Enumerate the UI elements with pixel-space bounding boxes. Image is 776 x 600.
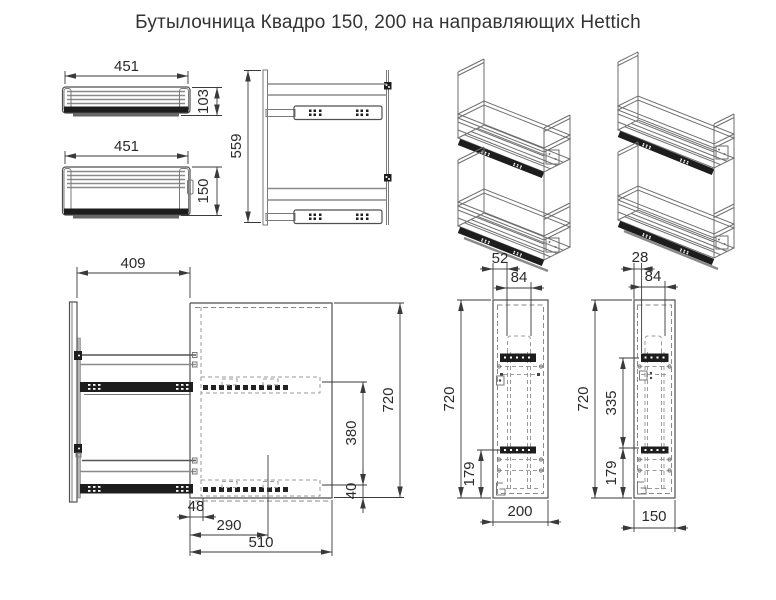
upper-tier-side — [74, 351, 320, 395]
dim-label-150-rail-height: 179 — [603, 460, 620, 485]
dim-label-200-side-offset: 52 — [492, 250, 509, 267]
cabinet-outline — [190, 303, 332, 498]
iso-view-kvadro-200 — [458, 59, 570, 271]
dim-label-150-rail-spacing: 335 — [603, 390, 620, 415]
dim-200: 200 — [480, 500, 561, 526]
cabinet-200-outline — [493, 300, 548, 498]
front-view-200: 52 84 720 179 200 — [441, 250, 561, 526]
dim-label-200-width: 200 — [507, 503, 532, 520]
dim-179-200: 179 — [461, 450, 501, 498]
dim-84-200: 84 — [494, 269, 544, 336]
dim-label-200-rail-height: 179 — [461, 461, 478, 486]
unit-frame-post — [78, 338, 81, 498]
dim-label-200-height: 720 — [441, 386, 458, 411]
dim-48: 48 — [177, 498, 216, 556]
dim-label-plan-depth: 559 — [228, 133, 245, 158]
dim-451-small: 451 — [65, 58, 188, 84]
dim-52: 52 — [480, 250, 520, 336]
dim-label-rail-bottom-offset: 40 — [343, 483, 360, 500]
dim-451-large: 451 — [65, 138, 188, 164]
dim-label-basket-large-height: 150 — [195, 178, 212, 203]
dim-label-rail-spacing: 380 — [343, 420, 360, 445]
dim-label-150-side-offset: 28 — [632, 249, 649, 266]
basket-side-view-small: 451 103 — [63, 58, 223, 117]
dim-label-front-offset: 48 — [188, 498, 205, 515]
dim-409: 409 — [77, 255, 190, 298]
dim-label-200-unit-width: 84 — [511, 269, 528, 286]
dim-150-width: 150 — [621, 500, 688, 532]
dim-label-inner-depth: 290 — [216, 517, 241, 534]
plan-view: 559 — [228, 70, 392, 225]
dim-380: 380 — [322, 382, 367, 485]
rail-perforations-top — [309, 110, 369, 117]
cabinet-150-outline — [634, 300, 675, 498]
lower-tier-side — [74, 444, 320, 496]
door-panel — [70, 302, 78, 502]
dim-label-150-unit-width: 84 — [645, 268, 662, 285]
rail-perforations-bottom — [309, 214, 369, 221]
dim-label-basket-small-height: 103 — [195, 89, 212, 114]
iso-view-kvadro-150 — [618, 52, 734, 269]
drawing-canvas: 451 103 451 150 — [0, 0, 776, 600]
basket-side-view-large: 451 150 — [63, 138, 223, 219]
dim-label-side-height: 720 — [380, 387, 397, 412]
dim-720-side: 720 — [334, 303, 404, 498]
dim-40: 40 — [343, 469, 363, 513]
dim-290: 290 — [190, 455, 268, 539]
dim-label-cabinet-depth: 510 — [248, 534, 273, 551]
side-section-view: 409 720 380 40 48 — [70, 255, 405, 556]
dim-label-basket-large-width: 451 — [114, 138, 139, 155]
dim-559: 559 — [228, 71, 261, 223]
front-view-150: 28 84 720 335 179 — [575, 249, 688, 532]
dim-510: 510 — [190, 500, 332, 556]
dim-84-150: 84 — [629, 268, 678, 336]
dim-label-150-width: 150 — [641, 508, 666, 525]
dim-label-150-height: 720 — [575, 386, 592, 411]
dim-label-basket-small-width: 451 — [114, 58, 139, 75]
dim-label-pullout: 409 — [120, 255, 145, 272]
dim-179-150: 179 — [603, 448, 623, 498]
